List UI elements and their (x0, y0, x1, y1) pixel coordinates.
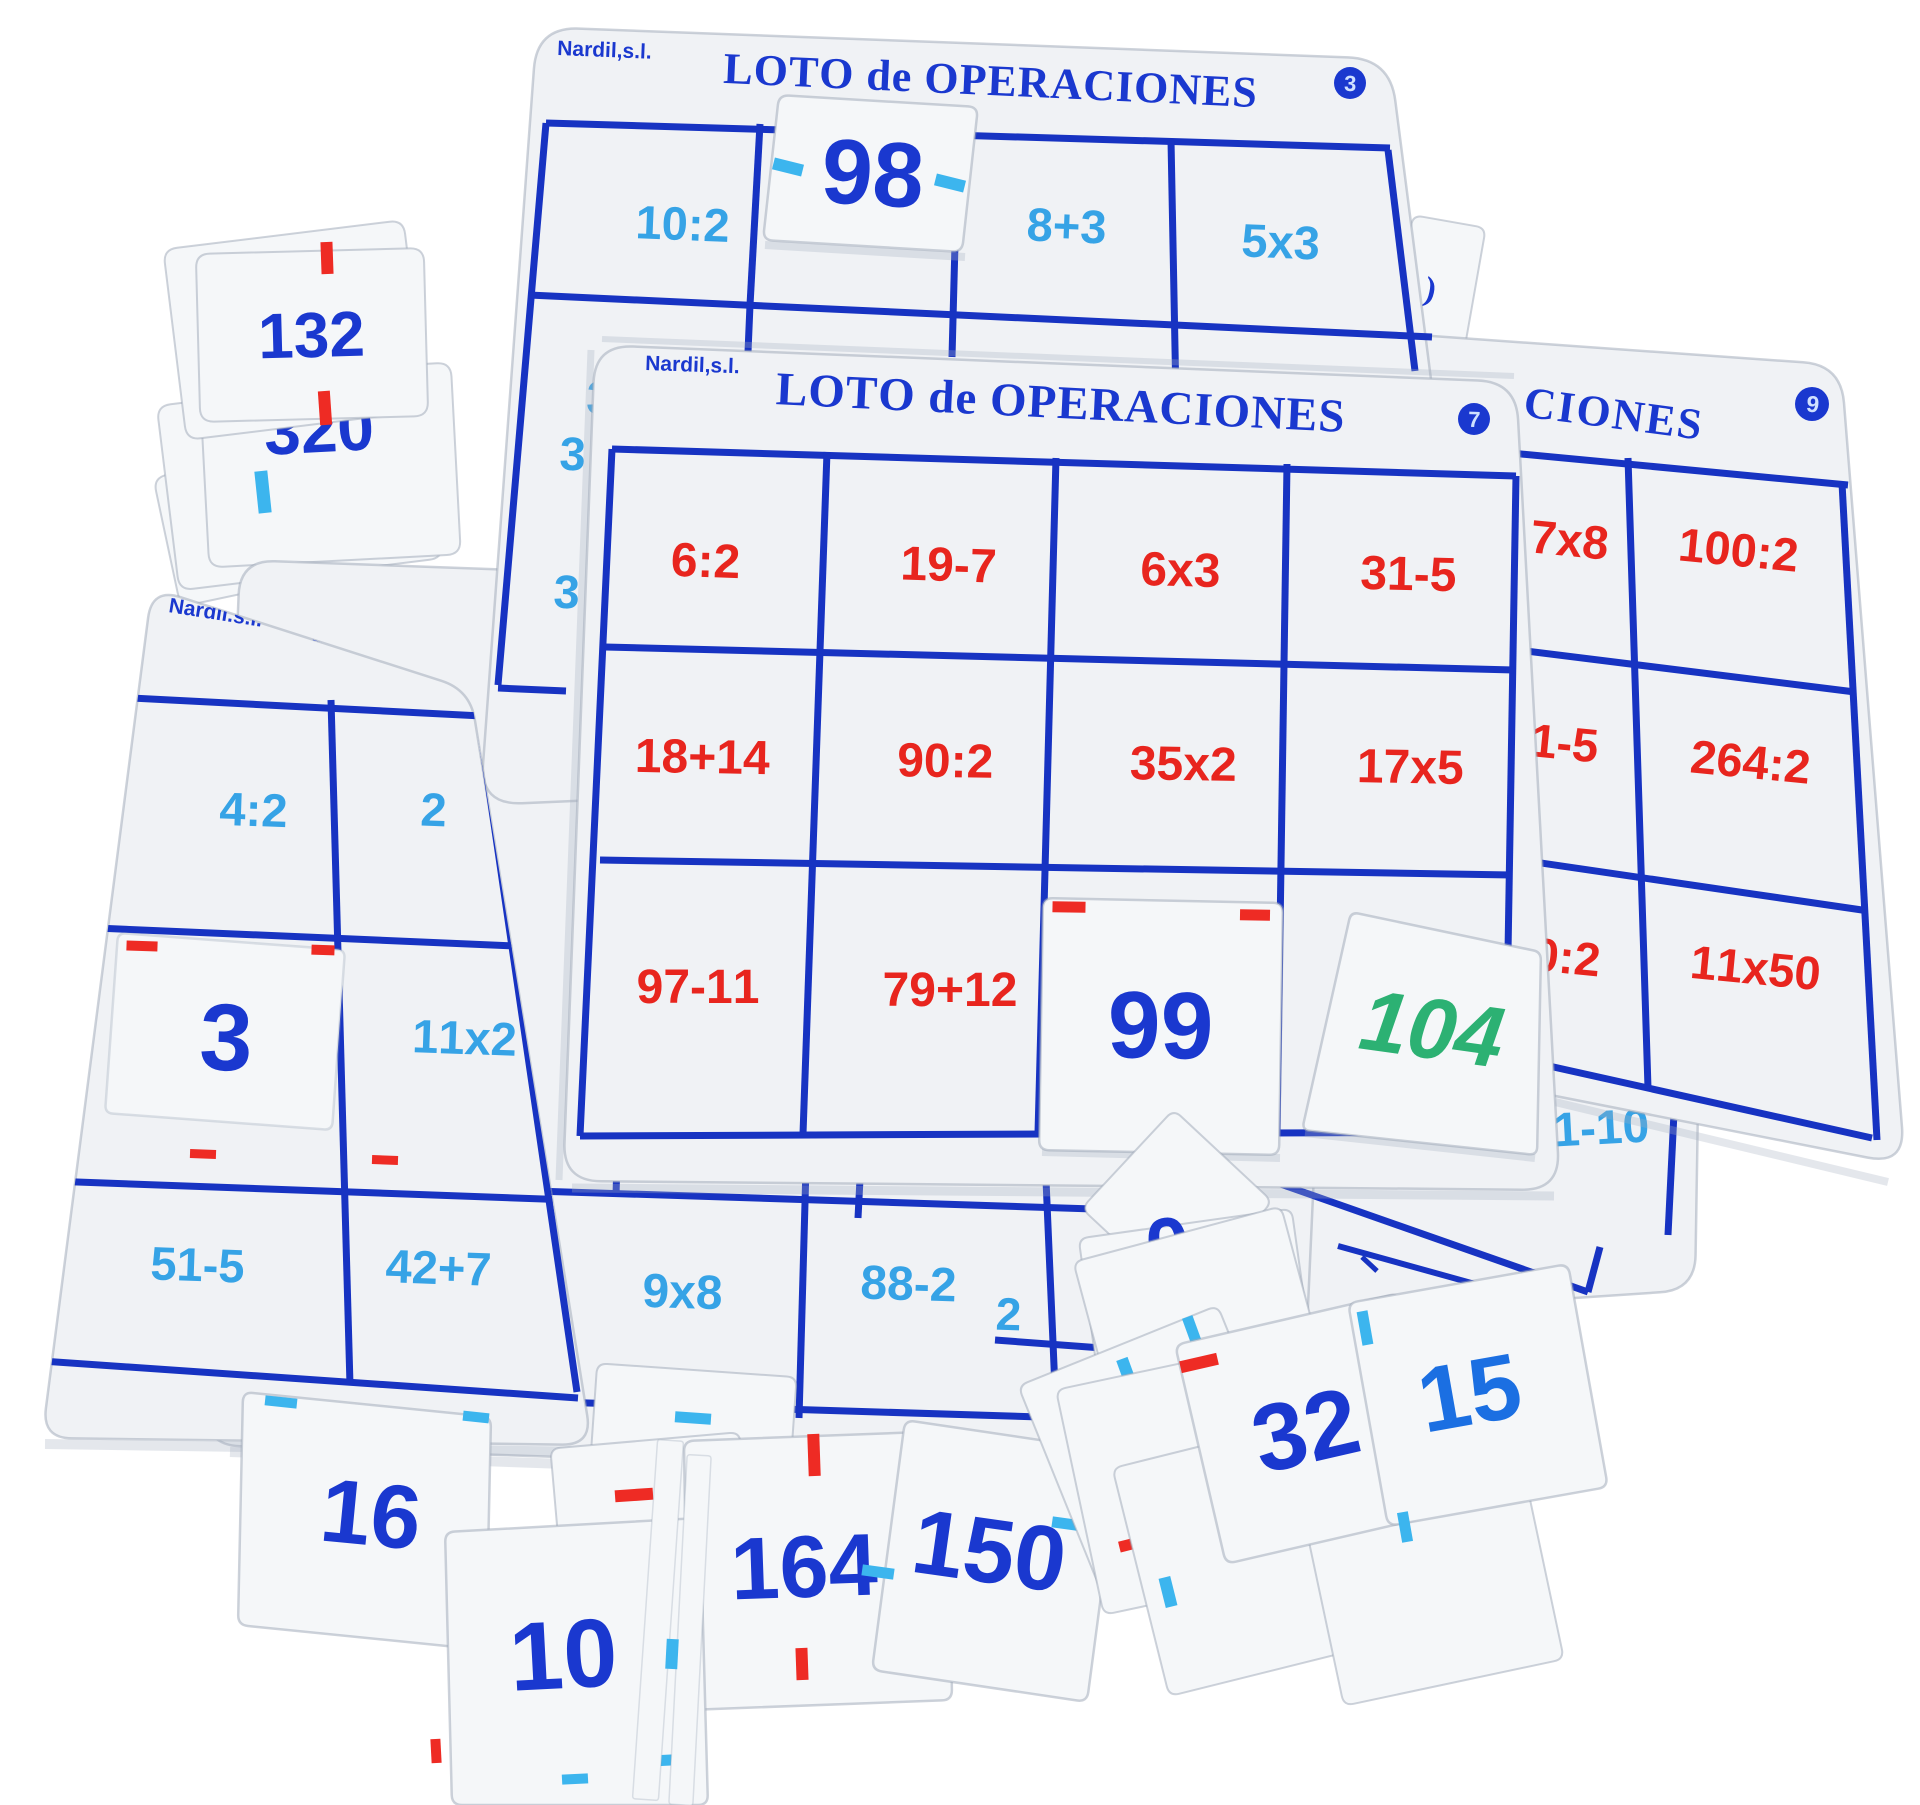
svg-text:97-11: 97-11 (637, 961, 760, 1014)
svg-text:164: 164 (729, 1514, 879, 1618)
svg-text:42+7: 42+7 (385, 1239, 493, 1296)
svg-text:79+12: 79+12 (883, 964, 1018, 1017)
svg-text:15: 15 (1410, 1334, 1529, 1452)
svg-text:17x5: 17x5 (1356, 740, 1464, 795)
svg-text:6x3: 6x3 (1140, 543, 1221, 598)
svg-text:11x2: 11x2 (411, 1009, 517, 1066)
svg-text:5x3: 5x3 (1240, 213, 1320, 269)
svg-text:104: 104 (1354, 972, 1509, 1087)
svg-text:99: 99 (1107, 972, 1215, 1080)
svg-text:3: 3 (559, 427, 587, 481)
svg-text:2: 2 (420, 783, 448, 837)
svg-text:88-2: 88-2 (860, 1257, 958, 1313)
svg-text:Nardil,s.l.: Nardil,s.l. (557, 37, 652, 64)
svg-text:16: 16 (316, 1461, 425, 1570)
svg-text:98: 98 (819, 120, 927, 228)
svg-text:18+14: 18+14 (634, 730, 770, 785)
svg-text:90:2: 90:2 (897, 734, 994, 789)
svg-text:Nardil,s.l.: Nardil,s.l. (645, 352, 740, 378)
svg-text:4:2: 4:2 (219, 782, 289, 837)
svg-text:10: 10 (507, 1597, 620, 1711)
svg-text:132: 132 (257, 298, 366, 373)
svg-text:35x2: 35x2 (1129, 737, 1237, 792)
svg-text:6:2: 6:2 (670, 534, 741, 589)
svg-text:3: 3 (553, 565, 581, 619)
svg-text:2: 2 (995, 1288, 1022, 1341)
svg-text:9x8: 9x8 (642, 1265, 724, 1320)
svg-text:10:2: 10:2 (635, 195, 731, 252)
svg-text:9: 9 (1805, 390, 1820, 417)
svg-text:19-7: 19-7 (900, 537, 998, 593)
svg-text:3: 3 (1344, 71, 1357, 96)
svg-text:7x8: 7x8 (1528, 509, 1611, 569)
svg-text:8+3: 8+3 (1026, 197, 1108, 253)
svg-text:7: 7 (1468, 407, 1481, 432)
svg-text:51-5: 51-5 (150, 1236, 246, 1292)
svg-text:31-5: 31-5 (1360, 547, 1457, 602)
svg-text:3: 3 (198, 984, 255, 1092)
svg-text:150: 150 (906, 1490, 1072, 1612)
